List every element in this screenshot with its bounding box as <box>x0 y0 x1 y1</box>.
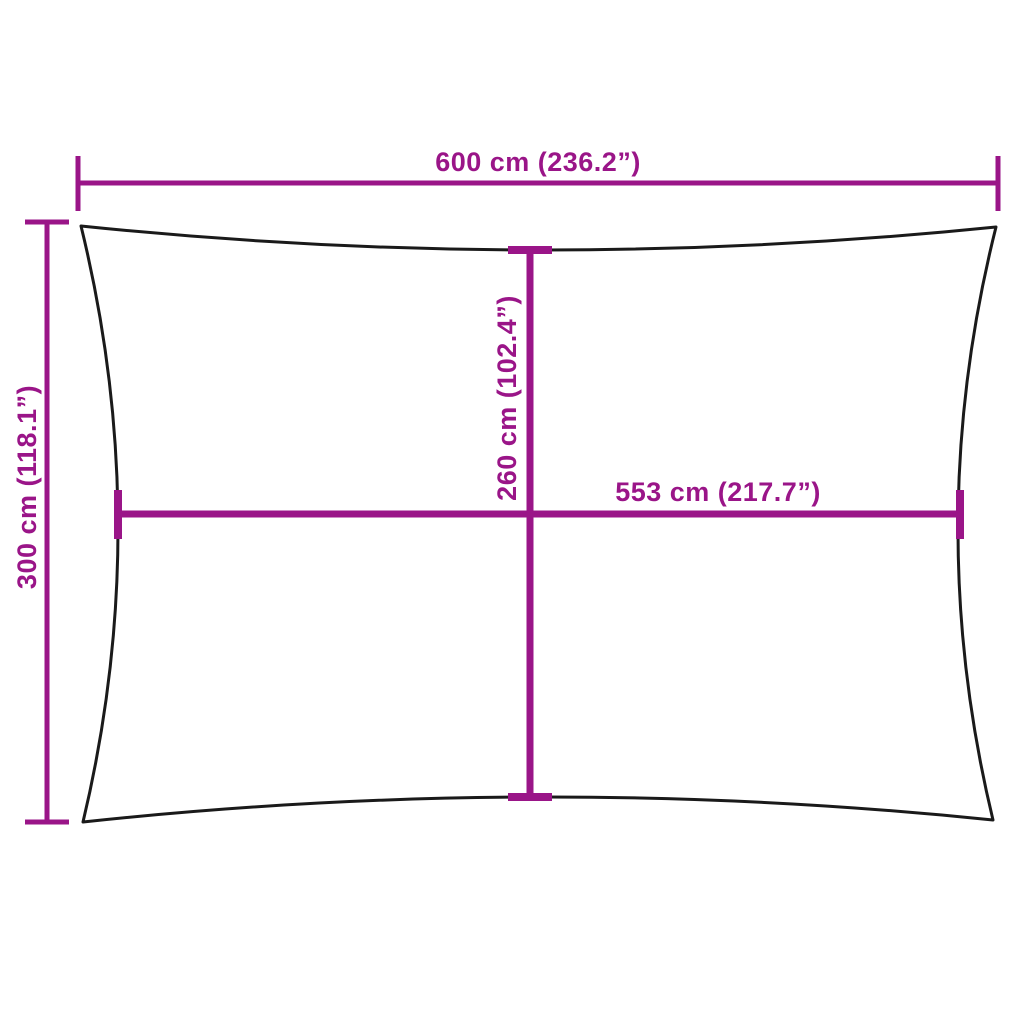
label-inner-width: 553 cm (217.7”) <box>615 477 821 507</box>
label-overall-width: 600 cm (236.2”) <box>435 147 641 177</box>
sail-outline <box>81 226 996 822</box>
diagram-canvas: 600 cm (236.2”) 300 cm (118.1”) 260 cm (… <box>0 0 1024 1024</box>
label-inner-height: 260 cm (102.4”) <box>492 295 522 501</box>
dimension-overall-height: 300 cm (118.1”) <box>12 222 69 822</box>
label-overall-height: 300 cm (118.1”) <box>12 385 42 589</box>
dimension-inner-height: 260 cm (102.4”) <box>492 250 552 797</box>
dimension-inner-width: 553 cm (217.7”) <box>118 477 960 539</box>
dimension-overall-width: 600 cm (236.2”) <box>78 147 998 211</box>
dimension-diagram: 600 cm (236.2”) 300 cm (118.1”) 260 cm (… <box>0 0 1024 1024</box>
